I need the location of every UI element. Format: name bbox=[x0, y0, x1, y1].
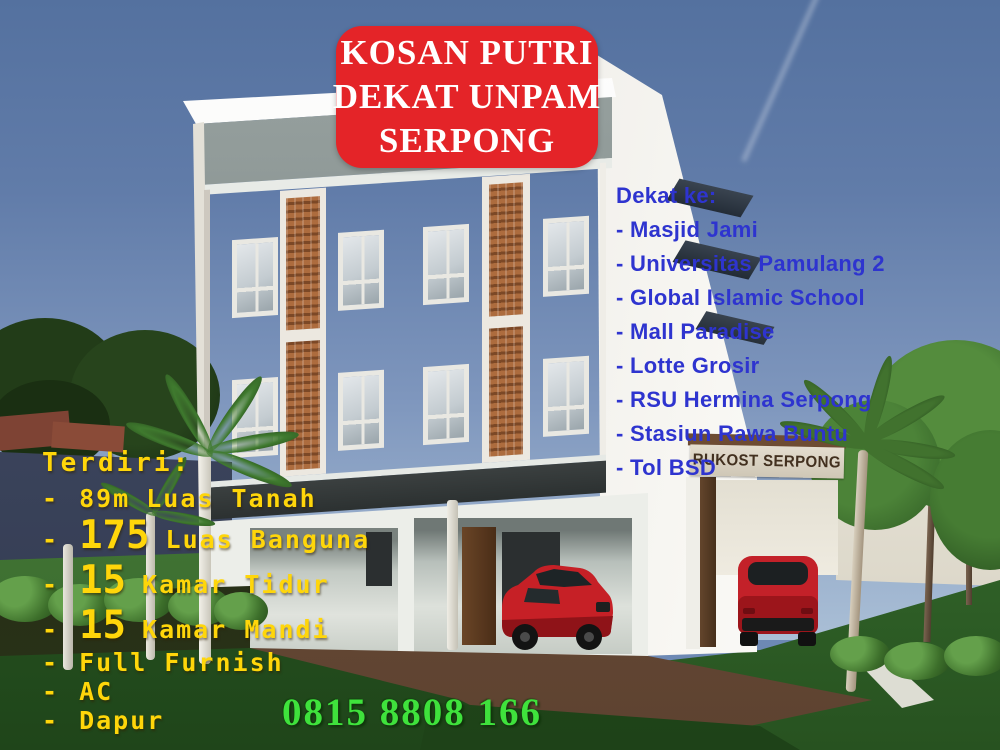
nearby-item: - Stasiun Rawa Buntu bbox=[616, 421, 885, 447]
window bbox=[423, 224, 469, 305]
brick-lattice bbox=[489, 326, 523, 456]
feature-item: - 15 Kamar Mandi bbox=[42, 603, 370, 648]
nearby-item: - RSU Hermina Serpong bbox=[616, 387, 885, 413]
features-heading: Terdiri: bbox=[42, 448, 370, 478]
shrub bbox=[830, 636, 890, 672]
nearby-item: - Global Islamic School bbox=[616, 285, 885, 311]
nearby-item: - Masjid Jami bbox=[616, 217, 885, 243]
red-car-rear bbox=[731, 544, 825, 650]
title-line-1: KOSAN PUTRI bbox=[340, 31, 593, 75]
window bbox=[232, 237, 278, 318]
brick-lattice bbox=[489, 182, 523, 316]
feature-item: - 15 Kamar Tidur bbox=[42, 558, 370, 603]
feature-item: - 89m Luas Tanah bbox=[42, 484, 370, 513]
nearby-heading: Dekat ke: bbox=[616, 183, 885, 209]
red-car-front bbox=[492, 550, 618, 654]
title-line-2: DEKAT UNPAM bbox=[333, 75, 602, 119]
shrub bbox=[944, 636, 1000, 676]
nearby-item: - Universitas Pamulang 2 bbox=[616, 251, 885, 277]
pilaster bbox=[600, 163, 606, 459]
gate-brown-column bbox=[700, 477, 716, 647]
phone-number: 0815 8808 166 bbox=[282, 690, 542, 735]
window bbox=[338, 370, 384, 451]
brick-lattice bbox=[286, 196, 320, 330]
title-banner: KOSAN PUTRI DEKAT UNPAM SERPONG bbox=[336, 26, 598, 168]
carport-pole bbox=[447, 500, 458, 650]
feature-item: - Full Furnish bbox=[42, 648, 370, 677]
feature-item: - 175 Luas Banguna bbox=[42, 513, 370, 558]
gate-pillar bbox=[686, 477, 700, 649]
nearby-item: - Tol BSD bbox=[616, 455, 885, 481]
entry-door bbox=[462, 527, 496, 645]
shrub bbox=[884, 642, 950, 680]
advert-image: RUKOST SERPONG KOSAN PUT bbox=[0, 0, 1000, 750]
window bbox=[543, 356, 589, 437]
window bbox=[338, 230, 384, 311]
nearby-places-list: Dekat ke: - Masjid Jami - Universitas Pa… bbox=[616, 183, 885, 489]
nearby-item: - Mall Paradise bbox=[616, 319, 885, 345]
title-line-3: SERPONG bbox=[379, 119, 555, 163]
window bbox=[423, 364, 469, 445]
window bbox=[543, 216, 589, 297]
nearby-item: - Lotte Grosir bbox=[616, 353, 885, 379]
